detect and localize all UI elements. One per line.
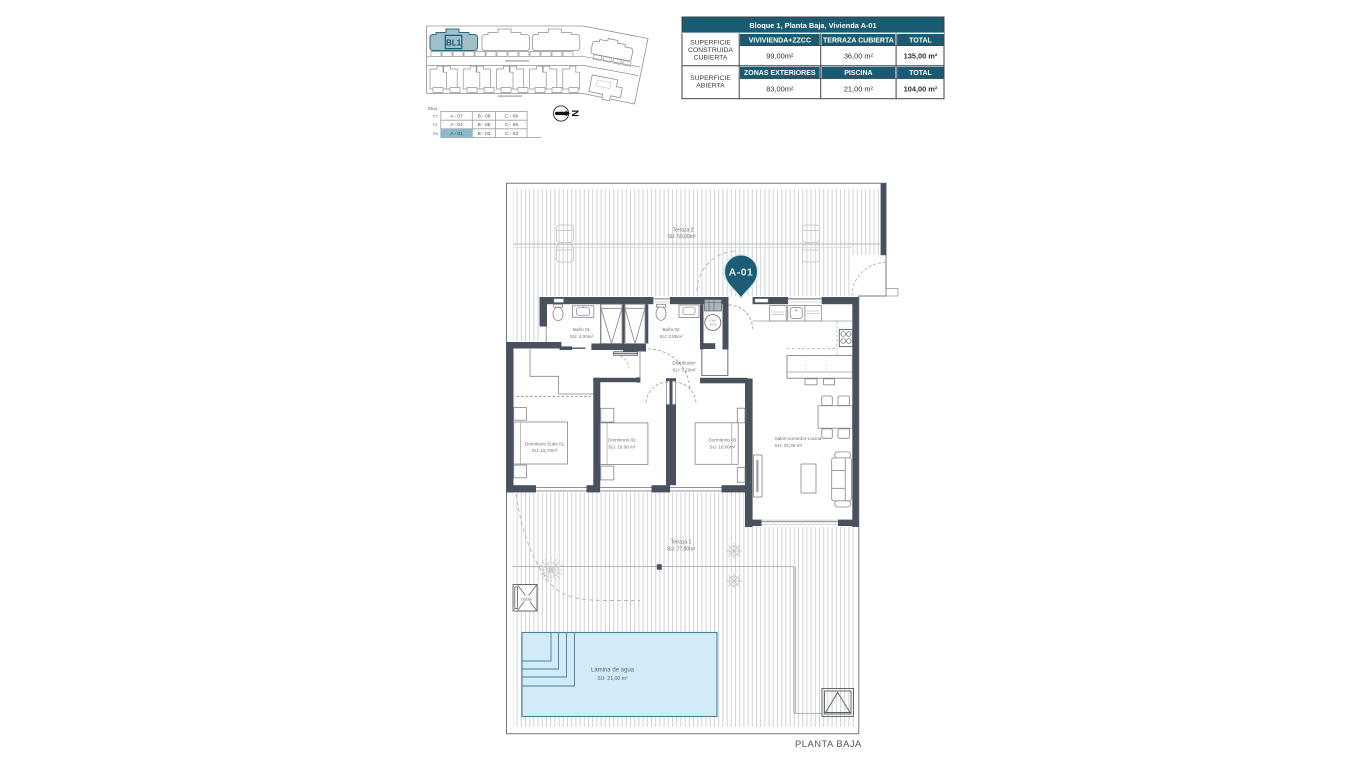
svg-text:99,00m²: 99,00m² xyxy=(766,52,794,61)
svg-text:P1: P1 xyxy=(433,123,438,127)
svg-text:36,00 m²: 36,00 m² xyxy=(844,52,874,61)
svg-text:SU: 32,35 m²: SU: 32,35 m² xyxy=(775,443,803,448)
svg-text:PLANTA BAJA: PLANTA BAJA xyxy=(795,738,862,749)
svg-text:ABIERTA: ABIERTA xyxy=(696,83,725,90)
svg-text:SU: 3,80m²: SU: 3,80m² xyxy=(659,334,683,339)
svg-text:SU: 3,20m²: SU: 3,20m² xyxy=(672,368,696,373)
svg-text:Lámina de agua: Lámina de agua xyxy=(591,668,635,674)
svg-text:TERRAZA CUBIERTA: TERRAZA CUBIERTA xyxy=(823,37,894,44)
svg-text:SU: 4,00m²: SU: 4,00m² xyxy=(570,334,594,339)
svg-text:CUBIERTA: CUBIERTA xyxy=(694,55,728,62)
svg-text:Baño 02: Baño 02 xyxy=(662,327,680,332)
svg-text:Bloque 1, Planta Baja, Viviend: Bloque 1, Planta Baja, Vivienda A-01 xyxy=(749,21,876,30)
svg-text:Baño 01: Baño 01 xyxy=(573,327,591,332)
svg-text:135,00 m²: 135,00 m² xyxy=(904,52,938,61)
svg-text:TOTAL: TOTAL xyxy=(909,70,932,77)
svg-text:104,00 m²: 104,00 m² xyxy=(904,85,938,94)
svg-text:Salón-comedor-cocina: Salón-comedor-cocina xyxy=(775,436,822,441)
svg-text:B - 08: B - 08 xyxy=(478,114,491,120)
svg-text:SU: 77,00m²: SU: 77,00m² xyxy=(667,546,695,552)
svg-text:CONSTRUIDA: CONSTRUIDA xyxy=(688,47,733,54)
svg-text:SU: 10,00 m²: SU: 10,00 m² xyxy=(608,445,636,450)
svg-text:TOTAL: TOTAL xyxy=(909,37,932,44)
svg-text:Dormitorio 03: Dormitorio 03 xyxy=(709,438,737,443)
svg-text:C - 03: C - 03 xyxy=(505,131,518,137)
svg-text:Dormitorio Suite 01: Dormitorio Suite 01 xyxy=(525,441,565,446)
svg-text:Distribuidor: Distribuidor xyxy=(672,361,696,366)
svg-text:B - 02: B - 02 xyxy=(478,131,491,137)
svg-text:21,00 m²: 21,00 m² xyxy=(844,85,874,94)
svg-text:ACS: ACS xyxy=(710,323,716,327)
svg-text:P2: P2 xyxy=(433,115,438,119)
svg-text:BL1: BL1 xyxy=(446,39,462,48)
svg-text:SU: 15,70m²: SU: 15,70m² xyxy=(532,448,558,453)
svg-text:SU: 10,00m²: SU: 10,00m² xyxy=(709,445,735,450)
svg-text:A - 01: A - 01 xyxy=(450,131,463,137)
svg-text:PB: PB xyxy=(433,132,439,136)
svg-text:VIVIVIENDA+ZZCC: VIVIVIENDA+ZZCC xyxy=(749,37,811,44)
svg-text:SUPERFICIE: SUPERFICIE xyxy=(690,40,731,47)
svg-text:ZONAS EXTERIORES: ZONAS EXTERIORES xyxy=(744,70,816,77)
svg-text:SU: 21,00 m²: SU: 21,00 m² xyxy=(597,676,628,682)
svg-text:83,00m²: 83,00m² xyxy=(766,85,794,94)
svg-text:C - 09: C - 09 xyxy=(505,114,518,120)
svg-text:Ducha: Ducha xyxy=(521,597,531,601)
svg-text:Dormitorio 02: Dormitorio 02 xyxy=(608,438,636,443)
svg-text:A - 04: A - 04 xyxy=(450,122,463,128)
svg-text:C - 06: C - 06 xyxy=(505,122,518,128)
svg-text:B - 05: B - 05 xyxy=(478,122,491,128)
svg-text:PISCINA: PISCINA xyxy=(844,70,872,77)
svg-text:N: N xyxy=(569,110,580,117)
svg-text:SU: 50,00m²: SU: 50,00m² xyxy=(667,234,695,240)
svg-text:Terraza 2: Terraza 2 xyxy=(673,227,694,233)
svg-text:Terraza 1: Terraza 1 xyxy=(671,539,692,545)
svg-text:A-01: A-01 xyxy=(729,267,754,279)
svg-text:Bloq.:: Bloq.: xyxy=(428,106,440,111)
svg-text:SUPERFICIE: SUPERFICIE xyxy=(690,75,731,82)
svg-text:A - 07: A - 07 xyxy=(450,114,463,120)
